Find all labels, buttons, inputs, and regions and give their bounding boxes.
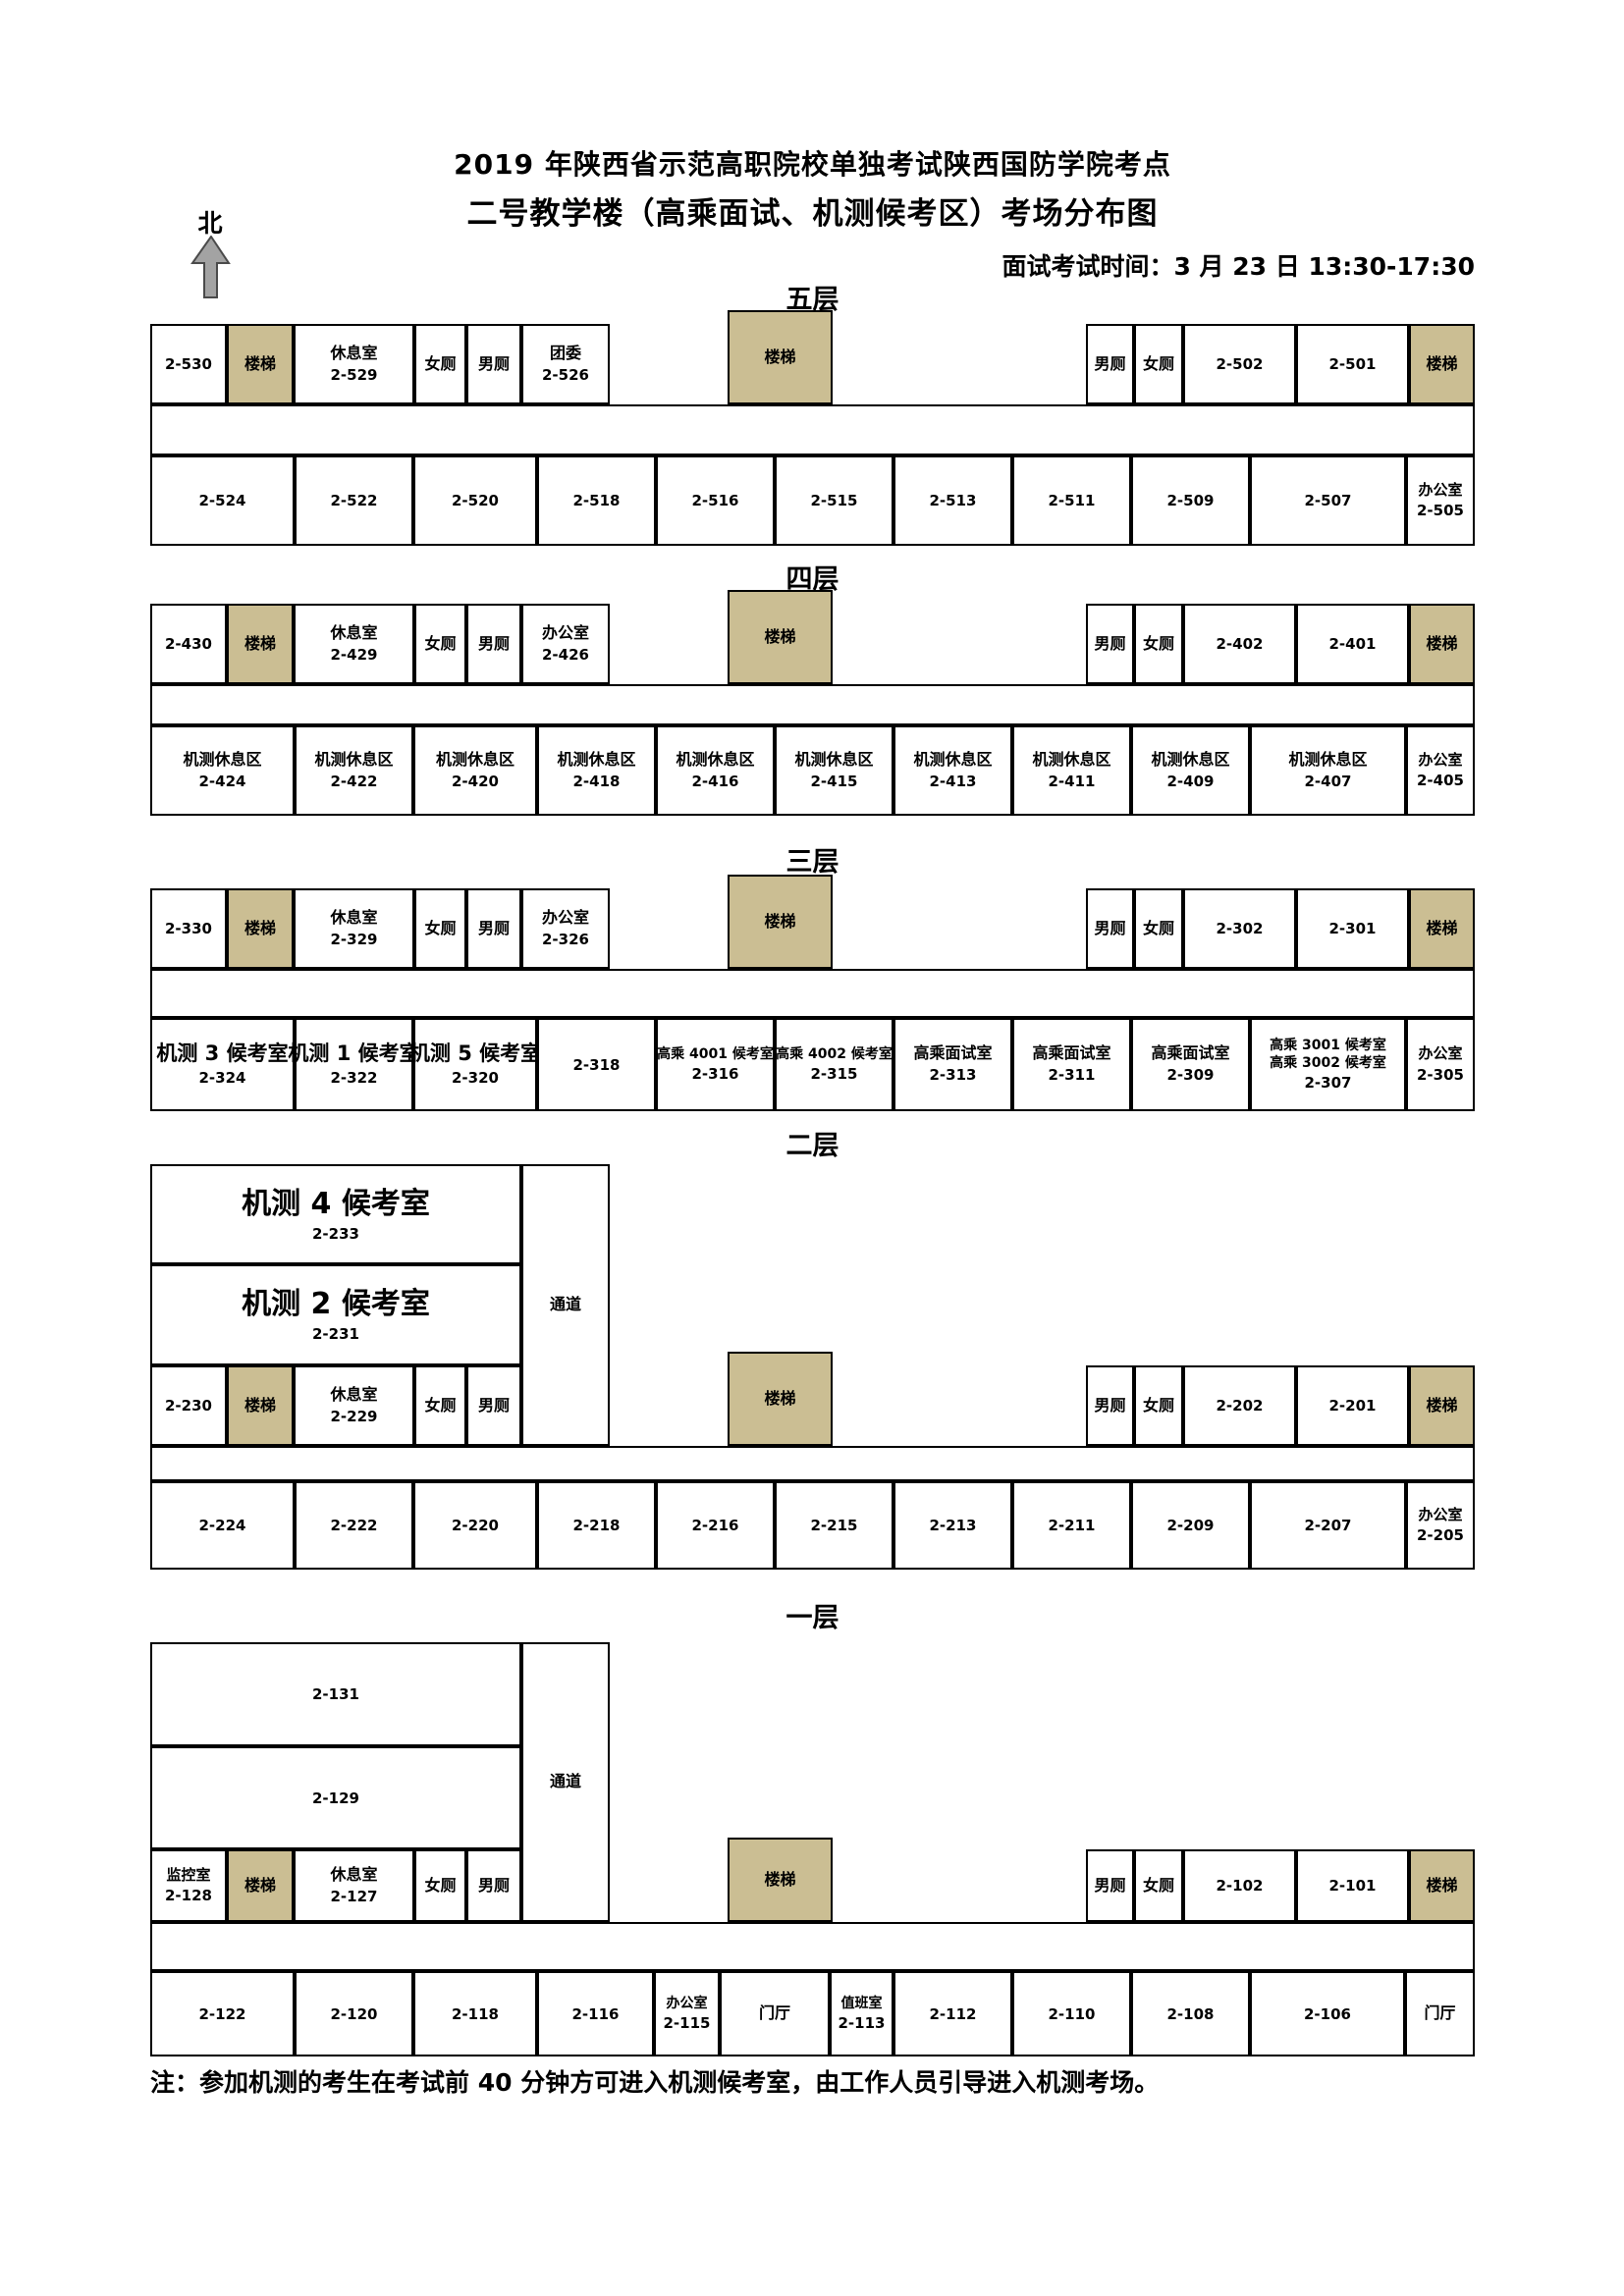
room-number: 2-502 — [1217, 355, 1264, 375]
room-label: 男厕 — [1094, 1396, 1125, 1416]
room-number: 2-401 — [1329, 635, 1377, 655]
room-number: 2-229 — [331, 1408, 378, 1427]
room-number: 2-513 — [930, 492, 977, 511]
room-number: 2-213 — [930, 1517, 977, 1536]
room-2-215: 2-215 — [775, 1481, 893, 1570]
room-2-513: 2-513 — [893, 455, 1012, 546]
room-2-131: 2-131 — [150, 1642, 521, 1746]
room-number: 2-420 — [452, 773, 499, 792]
room-2-216: 2-216 — [656, 1481, 775, 1570]
room-2-108: 2-108 — [1131, 1971, 1250, 2056]
womens-toilet-cell: 女厕 — [414, 1849, 466, 1922]
womens-toilet-cell: 女厕 — [414, 324, 466, 404]
room-2-229: 休息室2-229 — [294, 1365, 414, 1446]
room-label: 通道 — [550, 1295, 581, 1315]
room-number: 2-324 — [199, 1069, 246, 1089]
room-label: 高乘 3002 候考室 — [1270, 1054, 1386, 1072]
room-label: 楼梯 — [244, 354, 276, 375]
room-2-220: 2-220 — [413, 1481, 537, 1570]
womens-toilet-cell: 女厕 — [1134, 604, 1183, 684]
room-2-315: 高乘 4002 候考室2-315 — [775, 1018, 893, 1111]
stairs-cell: 楼梯 — [728, 1352, 833, 1446]
room-2-102: 2-102 — [1183, 1849, 1296, 1922]
room-label: 门厅 — [759, 2003, 790, 2024]
room-2-127: 休息室2-127 — [294, 1849, 414, 1922]
room-number: 2-313 — [930, 1066, 977, 1086]
room-label: 高乘面试室 — [913, 1043, 992, 1064]
room-2-207: 2-207 — [1250, 1481, 1406, 1570]
room-label: 办公室 — [1418, 751, 1462, 771]
room-number: 2-115 — [664, 2014, 711, 2034]
room-2-316: 高乘 4001 候考室2-316 — [656, 1018, 775, 1111]
mens-toilet-cell: 男厕 — [466, 1849, 521, 1922]
room-number: 2-526 — [542, 366, 589, 386]
room-2-128: 监控室2-128 — [150, 1849, 227, 1922]
mens-toilet-cell: 男厕 — [1086, 888, 1134, 969]
room-label: 女厕 — [1143, 919, 1174, 939]
room-label: 机测 4 候考室 — [242, 1185, 430, 1223]
room-label: 机测 1 候考室 — [288, 1041, 419, 1067]
corridor — [150, 969, 1475, 1018]
room-2-509: 2-509 — [1131, 455, 1250, 546]
stairs-cell: 楼梯 — [728, 875, 833, 969]
room-number: 2-416 — [692, 773, 739, 792]
mens-toilet-cell: 男厕 — [1086, 604, 1134, 684]
room-2-112: 2-112 — [893, 1971, 1012, 2056]
corridor — [150, 1922, 1475, 1971]
room-number: 2-116 — [572, 2005, 620, 2025]
room-label: 门厅 — [1424, 2003, 1455, 2024]
room-2-231: 机测 2 候考室2-231 — [150, 1264, 521, 1365]
room-label: 楼梯 — [764, 1870, 795, 1891]
room-2-222: 2-222 — [295, 1481, 413, 1570]
room-number: 2-302 — [1217, 920, 1264, 939]
mens-toilet-cell: 男厕 — [466, 888, 521, 969]
room-number: 2-424 — [199, 773, 246, 792]
room-2-430: 2-430 — [150, 604, 227, 684]
room-number: 2-202 — [1217, 1397, 1264, 1416]
stairs-cell: 楼梯 — [728, 1838, 833, 1922]
room-2-218: 2-218 — [537, 1481, 656, 1570]
room-2-418: 机测休息区2-418 — [537, 725, 656, 816]
room-number: 2-329 — [331, 931, 378, 950]
room-number: 2-530 — [165, 355, 212, 375]
room-number: 2-220 — [452, 1517, 499, 1536]
room-2-502: 2-502 — [1183, 324, 1296, 404]
room-label: 办公室 — [542, 623, 589, 644]
stairs-cell: 楼梯 — [1409, 604, 1475, 684]
room-number: 2-429 — [331, 646, 378, 666]
stairs-cell: 楼梯 — [1409, 1365, 1475, 1446]
room-number: 2-529 — [331, 366, 378, 386]
room-2-529: 休息室2-529 — [294, 324, 414, 404]
room-number: 2-231 — [312, 1325, 359, 1345]
room-number: 2-509 — [1167, 492, 1215, 511]
womens-toilet-cell: 女厕 — [1134, 324, 1183, 404]
room-2-522: 2-522 — [295, 455, 413, 546]
room-2-230: 2-230 — [150, 1365, 227, 1446]
mens-toilet-cell: 男厕 — [1086, 1365, 1134, 1446]
room-2-106: 2-106 — [1250, 1971, 1405, 2056]
room-number: 2-209 — [1167, 1517, 1215, 1536]
stairs-cell: 楼梯 — [227, 888, 294, 969]
room-number: 2-426 — [542, 646, 589, 666]
room-2-318: 2-318 — [537, 1018, 656, 1111]
room-2-501: 2-501 — [1296, 324, 1409, 404]
room-number: 2-511 — [1049, 492, 1096, 511]
corridor — [150, 1446, 1475, 1481]
womens-toilet-cell: 女厕 — [1134, 1849, 1183, 1922]
room-2-113: 值班室2-113 — [830, 1971, 893, 2056]
room-label: 监控室 — [166, 1866, 210, 1886]
womens-toilet-cell: 女厕 — [1134, 888, 1183, 969]
room-2-129: 2-129 — [150, 1746, 521, 1849]
room-number: 2-413 — [930, 773, 977, 792]
room-number: 2-224 — [199, 1517, 246, 1536]
room-2-202: 2-202 — [1183, 1365, 1296, 1446]
room-2-518: 2-518 — [537, 455, 656, 546]
room-2-329: 休息室2-329 — [294, 888, 414, 969]
room-label: 楼梯 — [1426, 634, 1457, 655]
room-number: 2-507 — [1305, 492, 1352, 511]
room-number: 2-233 — [312, 1225, 359, 1245]
room-number: 2-112 — [930, 2005, 977, 2025]
room-label: 机测休息区 — [314, 750, 393, 771]
room-label: 团委 — [550, 344, 581, 364]
room-2-415: 机测休息区2-415 — [775, 725, 893, 816]
room-2-122: 2-122 — [150, 1971, 295, 2056]
mens-toilet-cell: 男厕 — [1086, 1849, 1134, 1922]
stairs-cell: 楼梯 — [728, 310, 833, 404]
room-number: 2-102 — [1217, 1877, 1264, 1896]
room-2-407: 机测休息区2-407 — [1250, 725, 1406, 816]
room-number: 2-409 — [1167, 773, 1215, 792]
lobby-cell: 门厅 — [720, 1971, 830, 2056]
room-label: 楼梯 — [1426, 1396, 1457, 1416]
room-number: 2-305 — [1417, 1066, 1464, 1086]
room-label: 值班室 — [841, 1995, 883, 2012]
room-label: 女厕 — [424, 634, 456, 655]
room-label: 女厕 — [424, 919, 456, 939]
room-label: 女厕 — [1143, 1396, 1174, 1416]
room-number: 2-101 — [1329, 1877, 1377, 1896]
room-number: 2-322 — [331, 1069, 378, 1089]
room-number: 2-415 — [811, 773, 858, 792]
room-label: 机测休息区 — [1288, 750, 1367, 771]
room-number: 2-131 — [312, 1685, 359, 1705]
stairs-cell: 楼梯 — [1409, 1849, 1475, 1922]
room-label: 休息室 — [330, 1865, 377, 1886]
room-2-511: 2-511 — [1012, 455, 1131, 546]
room-number: 2-520 — [452, 492, 499, 511]
room-label: 办公室 — [667, 1995, 708, 2012]
room-number: 2-215 — [811, 1517, 858, 1536]
room-label: 男厕 — [478, 1396, 510, 1416]
room-number: 2-218 — [573, 1517, 621, 1536]
room-number: 2-518 — [573, 492, 621, 511]
room-2-409: 机测休息区2-409 — [1131, 725, 1250, 816]
room-number: 2-106 — [1304, 2005, 1351, 2025]
womens-toilet-cell: 女厕 — [414, 888, 466, 969]
mens-toilet-cell: 男厕 — [466, 1365, 521, 1446]
room-number: 2-127 — [331, 1888, 378, 1907]
room-2-320: 机测 5 候考室2-320 — [413, 1018, 537, 1111]
room-label: 女厕 — [1143, 354, 1174, 375]
room-label: 楼梯 — [764, 912, 795, 933]
room-label: 楼梯 — [764, 1389, 795, 1410]
room-label: 高乘面试室 — [1151, 1043, 1229, 1064]
room-label: 通道 — [550, 1772, 581, 1792]
room-label: 机测休息区 — [557, 750, 635, 771]
room-number: 2-320 — [452, 1069, 499, 1089]
room-number: 2-205 — [1417, 1526, 1464, 1546]
room-label: 办公室 — [1418, 1044, 1462, 1064]
room-label: 楼梯 — [244, 634, 276, 655]
room-label: 高乘 4002 候考室 — [776, 1045, 893, 1063]
womens-toilet-cell: 女厕 — [414, 1365, 466, 1446]
room-label: 机测休息区 — [913, 750, 992, 771]
room-2-420: 机测休息区2-420 — [413, 725, 537, 816]
room-2-118: 2-118 — [413, 1971, 537, 2056]
room-2-302: 2-302 — [1183, 888, 1296, 969]
room-2-301: 2-301 — [1296, 888, 1409, 969]
stairs-cell: 楼梯 — [1409, 888, 1475, 969]
room-2-309: 高乘面试室2-309 — [1131, 1018, 1250, 1111]
room-label: 休息室 — [330, 1385, 377, 1406]
room-2-401: 2-401 — [1296, 604, 1409, 684]
room-2-426: 办公室2-426 — [521, 604, 610, 684]
room-2-116: 2-116 — [537, 1971, 654, 2056]
room-2-413: 机测休息区2-413 — [893, 725, 1012, 816]
room-number: 2-301 — [1329, 920, 1377, 939]
room-label: 男厕 — [478, 354, 510, 375]
stairs-cell: 楼梯 — [227, 324, 294, 404]
room-2-305: 办公室2-305 — [1406, 1018, 1475, 1111]
room-label: 办公室 — [542, 908, 589, 929]
room-label: 休息室 — [330, 344, 377, 364]
room-2-322: 机测 1 候考室2-322 — [295, 1018, 413, 1111]
room-2-524: 2-524 — [150, 455, 295, 546]
room-label: 楼梯 — [764, 347, 795, 368]
room-2-110: 2-110 — [1012, 1971, 1131, 2056]
room-2-402: 2-402 — [1183, 604, 1296, 684]
room-2-515: 2-515 — [775, 455, 893, 546]
room-number: 2-222 — [331, 1517, 378, 1536]
corridor — [150, 404, 1475, 455]
room-label: 楼梯 — [244, 919, 276, 939]
mens-toilet-cell: 男厕 — [466, 324, 521, 404]
room-label: 机测休息区 — [794, 750, 873, 771]
room-number: 2-522 — [331, 492, 378, 511]
building-plan: 2-530楼梯休息室2-529女厕男厕团委2-526楼梯男厕女厕2-5022-5… — [150, 0, 1475, 2296]
room-number: 2-515 — [811, 492, 858, 511]
stairs-cell: 楼梯 — [227, 604, 294, 684]
room-2-422: 机测休息区2-422 — [295, 725, 413, 816]
room-number: 2-318 — [573, 1056, 621, 1076]
room-2-416: 机测休息区2-416 — [656, 725, 775, 816]
womens-toilet-cell: 女厕 — [1134, 1365, 1183, 1446]
room-number: 2-516 — [692, 492, 739, 511]
room-number: 2-216 — [692, 1517, 739, 1536]
room-number: 2-120 — [331, 2005, 378, 2025]
room-2-326: 办公室2-326 — [521, 888, 610, 969]
room-label: 机测 3 候考室 — [156, 1041, 288, 1067]
room-label: 男厕 — [1094, 919, 1125, 939]
room-label: 休息室 — [330, 623, 377, 644]
room-label: 楼梯 — [1426, 1876, 1457, 1896]
room-label: 男厕 — [478, 919, 510, 939]
room-2-505: 办公室2-505 — [1406, 455, 1475, 546]
room-number: 2-330 — [165, 920, 212, 939]
room-number: 2-315 — [811, 1065, 858, 1085]
room-number: 2-505 — [1417, 502, 1464, 521]
room-label: 机测休息区 — [436, 750, 514, 771]
room-2-520: 2-520 — [413, 455, 537, 546]
room-label: 办公室 — [1418, 481, 1462, 501]
room-2-526: 团委2-526 — [521, 324, 610, 404]
room-label: 楼梯 — [1426, 919, 1457, 939]
room-2-101: 2-101 — [1296, 1849, 1409, 1922]
room-label: 机测休息区 — [676, 750, 754, 771]
room-label: 男厕 — [1094, 1876, 1125, 1896]
room-2-330: 2-330 — [150, 888, 227, 969]
passage-cell: 通道 — [521, 1642, 610, 1922]
room-label: 办公室 — [1418, 1506, 1462, 1525]
room-label: 机测休息区 — [1151, 750, 1229, 771]
room-number: 2-211 — [1049, 1517, 1096, 1536]
room-label: 男厕 — [478, 1876, 510, 1896]
room-number: 2-128 — [165, 1887, 212, 1906]
room-2-429: 休息室2-429 — [294, 604, 414, 684]
room-number: 2-110 — [1049, 2005, 1096, 2025]
room-2-213: 2-213 — [893, 1481, 1012, 1570]
stairs-cell: 楼梯 — [728, 590, 833, 684]
room-label: 高乘 4001 候考室 — [657, 1045, 774, 1063]
room-2-120: 2-120 — [295, 1971, 413, 2056]
room-number: 2-122 — [199, 2005, 246, 2025]
room-number: 2-411 — [1049, 773, 1096, 792]
room-label: 高乘 3001 候考室 — [1270, 1037, 1386, 1054]
room-2-233: 机测 4 候考室2-233 — [150, 1164, 521, 1264]
room-label: 休息室 — [330, 908, 377, 929]
room-number: 2-108 — [1167, 2005, 1215, 2025]
room-number: 2-311 — [1049, 1066, 1096, 1086]
room-label: 楼梯 — [244, 1876, 276, 1896]
room-label: 楼梯 — [244, 1396, 276, 1416]
room-number: 2-501 — [1329, 355, 1377, 375]
stairs-cell: 楼梯 — [1409, 324, 1475, 404]
room-label: 楼梯 — [764, 627, 795, 648]
room-label: 女厕 — [1143, 634, 1174, 655]
room-2-209: 2-209 — [1131, 1481, 1250, 1570]
mens-toilet-cell: 男厕 — [466, 604, 521, 684]
room-label: 男厕 — [1094, 354, 1125, 375]
room-label: 机测休息区 — [183, 750, 261, 771]
room-number: 2-118 — [452, 2005, 499, 2025]
room-2-205: 办公室2-205 — [1406, 1481, 1475, 1570]
room-label: 楼梯 — [1426, 354, 1457, 375]
room-2-211: 2-211 — [1012, 1481, 1131, 1570]
stairs-cell: 楼梯 — [227, 1849, 294, 1922]
passage-cell: 通道 — [521, 1164, 610, 1446]
room-label: 男厕 — [478, 634, 510, 655]
room-2-530: 2-530 — [150, 324, 227, 404]
room-number: 2-309 — [1167, 1066, 1215, 1086]
room-2-507: 2-507 — [1250, 455, 1406, 546]
room-number: 2-418 — [573, 773, 621, 792]
room-number: 2-201 — [1329, 1397, 1377, 1416]
room-2-115: 办公室2-115 — [654, 1971, 720, 2056]
room-number: 2-407 — [1305, 773, 1352, 792]
room-label: 机测 5 候考室 — [409, 1041, 541, 1067]
floor-plan-page: 2019 年陕西省示范高职院校单独考试陕西国防学院考点 二号教学楼（高乘面试、机… — [0, 0, 1624, 2296]
room-number: 2-524 — [199, 492, 246, 511]
room-2-307: 高乘 3001 候考室高乘 3002 候考室2-307 — [1250, 1018, 1406, 1111]
room-label: 女厕 — [1143, 1876, 1174, 1896]
corridor — [150, 684, 1475, 725]
room-2-324: 机测 3 候考室2-324 — [150, 1018, 295, 1111]
room-2-311: 高乘面试室2-311 — [1012, 1018, 1131, 1111]
room-label: 机测 2 候考室 — [242, 1285, 430, 1323]
room-number: 2-405 — [1417, 772, 1464, 791]
room-2-424: 机测休息区2-424 — [150, 725, 295, 816]
room-2-201: 2-201 — [1296, 1365, 1409, 1446]
room-2-224: 2-224 — [150, 1481, 295, 1570]
room-2-313: 高乘面试室2-313 — [893, 1018, 1012, 1111]
room-number: 2-326 — [542, 931, 589, 950]
room-label: 女厕 — [424, 1396, 456, 1416]
room-number: 2-207 — [1305, 1517, 1352, 1536]
room-number: 2-129 — [312, 1789, 359, 1809]
room-2-516: 2-516 — [656, 455, 775, 546]
mens-toilet-cell: 男厕 — [1086, 324, 1134, 404]
room-2-405: 办公室2-405 — [1406, 725, 1475, 816]
room-number: 2-316 — [692, 1065, 739, 1085]
room-number: 2-307 — [1305, 1074, 1352, 1094]
footnote: 注：参加机测的考生在考试前 40 分钟方可进入机测候考室，由工作人员引导进入机测… — [150, 2063, 1159, 2099]
room-label: 男厕 — [1094, 634, 1125, 655]
room-label: 机测休息区 — [1032, 750, 1110, 771]
room-number: 2-402 — [1217, 635, 1264, 655]
stairs-cell: 楼梯 — [227, 1365, 294, 1446]
room-label: 女厕 — [424, 354, 456, 375]
room-label: 高乘面试室 — [1032, 1043, 1110, 1064]
room-number: 2-230 — [165, 1397, 212, 1416]
lobby-cell: 门厅 — [1405, 1971, 1475, 2056]
room-2-411: 机测休息区2-411 — [1012, 725, 1131, 816]
room-label: 女厕 — [424, 1876, 456, 1896]
room-number: 2-422 — [331, 773, 378, 792]
room-number: 2-430 — [165, 635, 212, 655]
womens-toilet-cell: 女厕 — [414, 604, 466, 684]
room-number: 2-113 — [839, 2014, 886, 2034]
